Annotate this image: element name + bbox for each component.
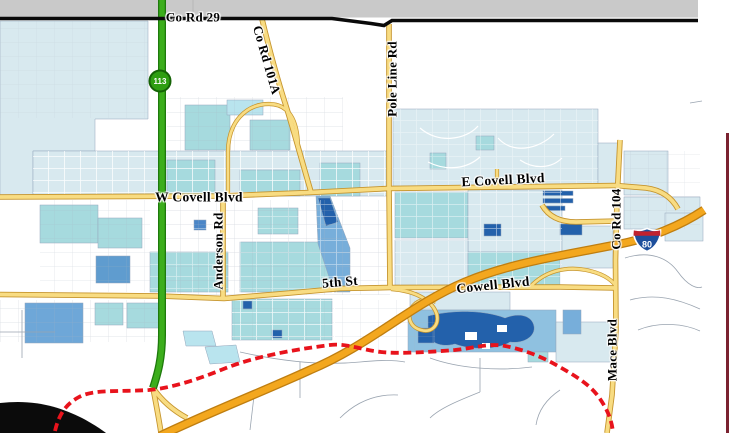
sr-113-shield: 113 [150,71,171,92]
sr-113-shield-number: 113 [154,77,167,86]
road-label-anderson-rd: Anderson Rd [212,212,225,289]
road-label-co-rd-29: Co Rd 29 [166,11,220,24]
road-label-w-covell-blvd: W Covell Blvd [155,190,243,204]
road-label-pole-line-rd: Pole Line Rd [386,41,399,117]
map-viewport[interactable]: 113 80 Co Rd 29 Co Rd 101A Pole Line Rd … [0,0,733,433]
road-label-5th-st: 5th St [322,274,359,291]
i-80-shield-number: 80 [642,240,652,250]
road-label-co-rd-104: Co Rd 104 [610,188,623,249]
outside-county-area [0,0,698,18]
dark-area-southwest [0,402,106,433]
i-80-shield: 80 [633,229,660,252]
road-label-mace-blvd: Mace Blvd [606,319,619,381]
